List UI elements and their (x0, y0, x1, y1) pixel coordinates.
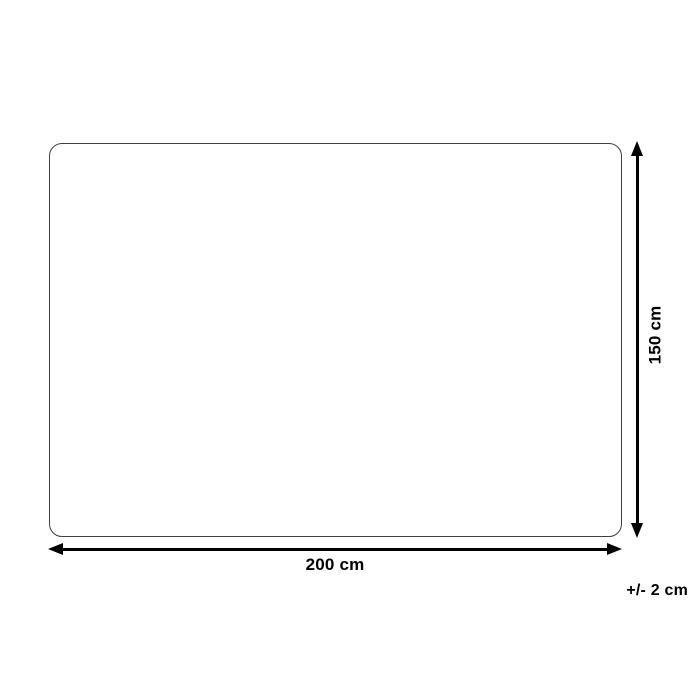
tolerance-label: +/- 2 cm (626, 583, 688, 599)
arrow-down-icon (631, 523, 643, 538)
height-label: 150 cm (647, 306, 664, 365)
arrow-left-icon (48, 543, 63, 555)
width-label: 200 cm (48, 556, 622, 573)
arrow-up-icon (631, 141, 643, 156)
width-arrow-line (63, 548, 607, 551)
height-arrow-line (636, 156, 639, 523)
product-outline (49, 143, 622, 537)
arrow-right-icon (607, 543, 622, 555)
dimension-diagram: 200 cm 150 cm +/- 2 cm (0, 0, 700, 700)
height-dimension-arrow (629, 141, 645, 538)
